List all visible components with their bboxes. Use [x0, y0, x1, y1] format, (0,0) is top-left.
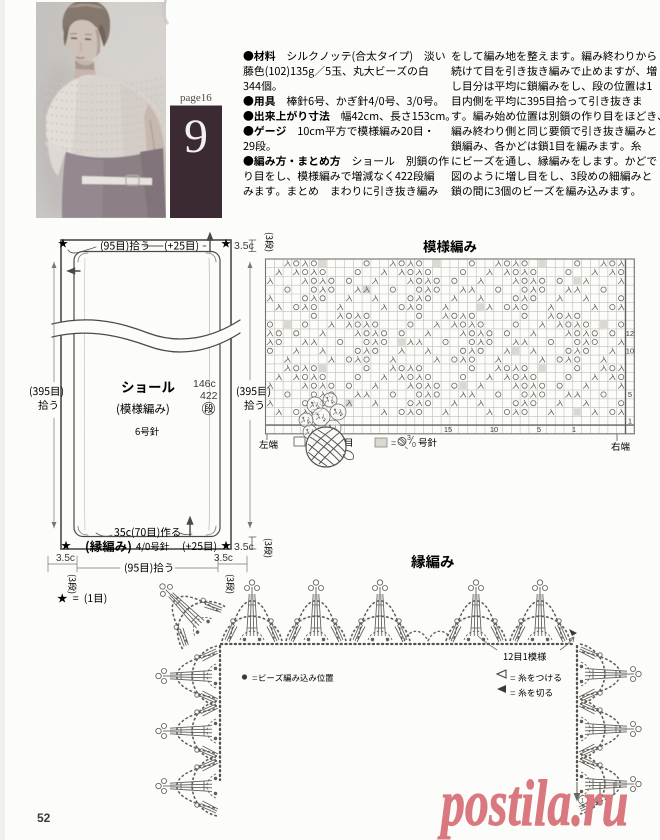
svg-text:3.5c: 3.5c — [234, 240, 254, 252]
svg-text:=: = — [252, 673, 258, 684]
svg-text:10: 10 — [626, 346, 634, 355]
svg-text:422: 422 — [200, 390, 218, 402]
svg-text:3.5c: 3.5c — [234, 541, 254, 553]
svg-text:1: 1 — [628, 416, 632, 425]
svg-text:15: 15 — [444, 425, 452, 434]
svg-text:5: 5 — [628, 390, 632, 399]
svg-text:12: 12 — [626, 329, 634, 338]
svg-text:3: 3 — [407, 435, 411, 442]
svg-text:page16: page16 — [180, 92, 212, 104]
svg-text:10: 10 — [490, 425, 498, 434]
svg-text:3.5c: 3.5c — [56, 553, 75, 564]
svg-text:3.5c: 3.5c — [214, 553, 233, 564]
svg-text:=: = — [510, 673, 516, 684]
svg-text:9: 9 — [184, 110, 208, 163]
svg-text:0: 0 — [412, 442, 416, 449]
svg-text:5: 5 — [537, 425, 541, 434]
svg-text:=: = — [391, 438, 396, 448]
svg-text:1: 1 — [572, 425, 576, 434]
svg-text:146c: 146c — [193, 378, 216, 390]
svg-text:=: = — [510, 688, 516, 699]
svg-text:52: 52 — [37, 811, 51, 825]
svg-text:postila.ru: postila.ru — [437, 768, 629, 840]
